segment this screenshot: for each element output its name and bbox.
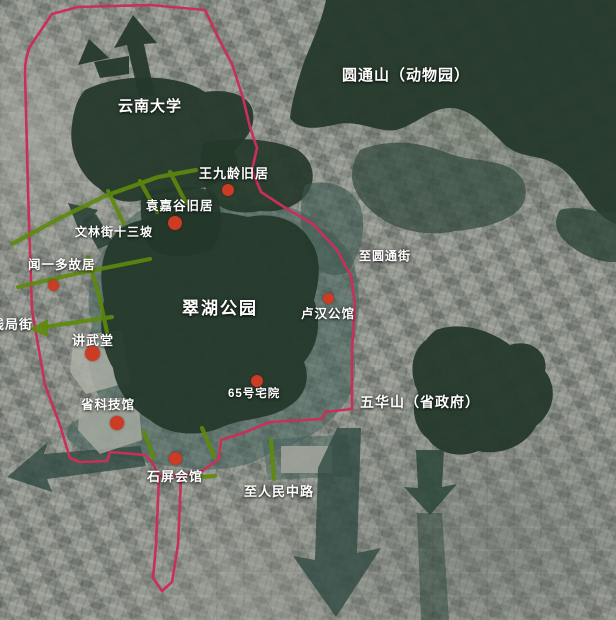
poi-marker-wangjiuling[interactable]: [222, 184, 234, 196]
wuhua-south-arrow: [404, 450, 457, 515]
area-right-edge: [556, 208, 616, 262]
street-renmin: [271, 440, 274, 479]
poi-marker-jiangwutang[interactable]: [85, 346, 100, 361]
poi-marker-wenyiduo[interactable]: [48, 280, 59, 291]
area-wuhua-mountain: [412, 326, 552, 454]
street-label-qianju: 钱局街: [0, 318, 33, 332]
poi-marker-no65[interactable]: [251, 375, 263, 387]
poi-marker-yuanjiagu[interactable]: [168, 216, 182, 230]
region-label-cuihu-park: 翠湖公园: [182, 300, 258, 319]
street-label-to-renmin: 至人民中路: [244, 485, 314, 499]
south-right-band: [417, 513, 449, 620]
poi-marker-luhan[interactable]: [323, 293, 334, 304]
southwest-arrow: [7, 442, 146, 492]
poi-label-wenyiduo: 闻一多故居: [28, 259, 96, 273]
area-zoo-lower: [352, 143, 526, 234]
region-label-wuhuashan-gov: 五华山（省政府）: [360, 395, 480, 410]
street-label-to-yuantong: 至圆通街: [359, 250, 411, 263]
map-canvas: 云南大学 圆通山（动物园） 翠湖公园 五华山（省政府） 文林街十三坡 钱局街 至…: [0, 0, 616, 620]
region-label-yuantongshan-zoo: 圆通山（动物园）: [342, 68, 470, 85]
poi-label-luhan: 卢汉公馆: [301, 308, 355, 322]
poi-label-science-museum: 省科技馆: [81, 399, 135, 413]
poi-marker-science-museum[interactable]: [110, 416, 124, 430]
poi-label-shiping: 石屏会馆: [147, 470, 203, 484]
poi-marker-shiping[interactable]: [169, 452, 182, 465]
poi-label-no65: 65号宅院: [228, 388, 280, 401]
street-label-wenlin: 文林街十三坡: [75, 226, 153, 239]
poi-label-wangjiuling: 王九龄旧居: [199, 167, 269, 181]
region-label-yunnan-university: 云南大学: [118, 99, 182, 116]
poi-label-yuanjiagu: 袁嘉谷旧居: [146, 200, 214, 214]
tour-route-spur: [153, 477, 181, 591]
